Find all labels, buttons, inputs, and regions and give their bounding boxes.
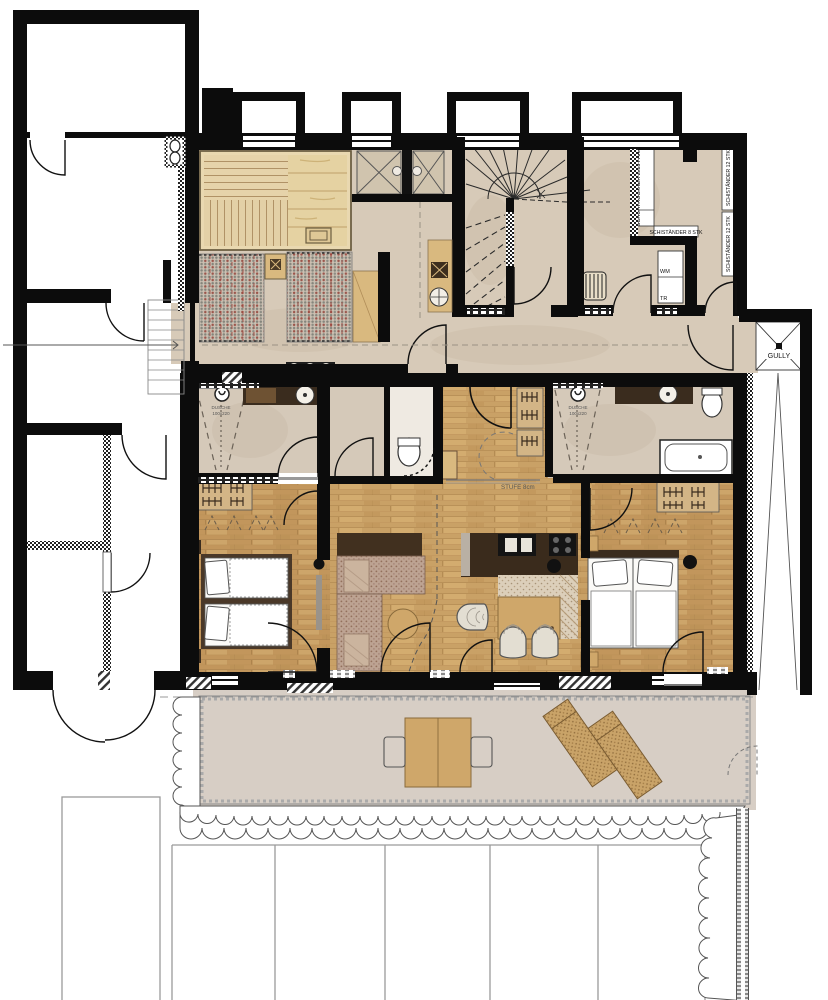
svg-text:SCHISTÄNDER 8 STK: SCHISTÄNDER 8 STK [649, 229, 703, 236]
svg-text:DUSCHE: DUSCHE [211, 405, 230, 410]
svg-text:100x220: 100x220 [212, 411, 230, 416]
svg-text:SCHISTÄNDER 12 STK: SCHISTÄNDER 12 STK [725, 150, 732, 206]
svg-text:WM: WM [660, 269, 670, 275]
svg-text:100x220: 100x220 [569, 411, 587, 416]
svg-text:SCHISTÄNDER 12 STK: SCHISTÄNDER 12 STK [725, 216, 732, 272]
svg-text:GULLY: GULLY [768, 353, 791, 360]
svg-text:STUFE 8cm: STUFE 8cm [501, 484, 535, 491]
svg-text:TR: TR [660, 296, 667, 302]
svg-text:DUSCHE: DUSCHE [568, 405, 587, 410]
